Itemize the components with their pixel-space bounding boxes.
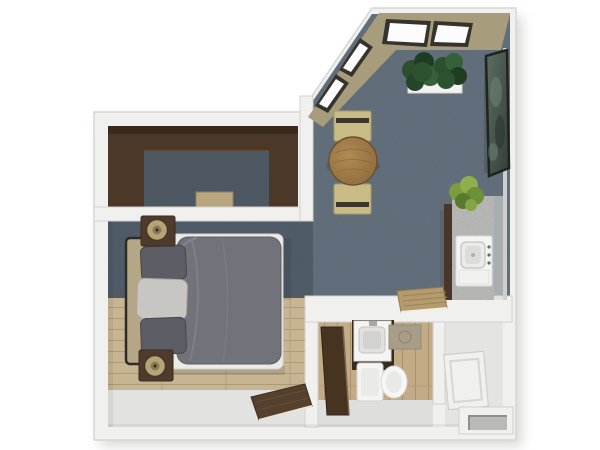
top-wall-windows bbox=[382, 19, 473, 47]
pillow-dark-top bbox=[140, 245, 187, 281]
floor-plan-svg bbox=[0, 0, 600, 450]
nightstand-top bbox=[141, 216, 175, 246]
toilet-tank-lid bbox=[361, 368, 379, 396]
kitchen-sink bbox=[456, 236, 492, 286]
toilet-seat bbox=[386, 371, 402, 393]
bathroom-entry-divider-wall bbox=[433, 322, 445, 404]
wall-art-texture bbox=[490, 77, 502, 107]
nightstand-bottom bbox=[139, 350, 173, 381]
entry-threshold-step bbox=[459, 407, 513, 434]
wall-art bbox=[484, 50, 509, 176]
walk-in-closet bbox=[108, 126, 298, 207]
vanity-faucet bbox=[369, 321, 377, 326]
sink-knob bbox=[487, 253, 490, 256]
bottom-wall-inner-shadow bbox=[108, 424, 503, 427]
bathroom-left-wall bbox=[305, 322, 318, 427]
wall-art-texture bbox=[495, 115, 505, 149]
closet-storage-box bbox=[196, 192, 233, 207]
closet-bottom-wall bbox=[94, 207, 313, 221]
pillow-dark-bottom bbox=[140, 317, 186, 355]
wall-art-texture bbox=[488, 143, 498, 161]
counter-wood-side bbox=[444, 204, 453, 300]
pillow-light-middle bbox=[136, 278, 187, 320]
floor-plan-image bbox=[0, 0, 600, 450]
left-wall-inner-shadow bbox=[108, 221, 113, 427]
entry-door-panel bbox=[444, 351, 489, 409]
dining-table bbox=[329, 137, 377, 185]
window-glass bbox=[387, 23, 427, 43]
sink-drainboard bbox=[459, 270, 489, 284]
counter-wall-gap bbox=[494, 196, 503, 300]
dining-bench-bottom bbox=[334, 184, 371, 214]
sink-drain bbox=[471, 253, 475, 257]
bath-mat bbox=[389, 325, 421, 349]
window-glass bbox=[434, 25, 469, 43]
bench-slot bbox=[336, 118, 369, 123]
toilet bbox=[357, 363, 407, 401]
lamp-finial bbox=[154, 365, 157, 368]
closet-shelf-shade bbox=[108, 126, 298, 134]
vanity-sink-inner bbox=[363, 331, 381, 349]
bench-slot bbox=[336, 202, 369, 207]
sink-knob bbox=[487, 245, 490, 248]
sink-knob bbox=[487, 261, 490, 264]
lamp-finial bbox=[156, 229, 159, 232]
threshold-slot bbox=[469, 416, 507, 430]
wall-mat bbox=[397, 287, 447, 312]
